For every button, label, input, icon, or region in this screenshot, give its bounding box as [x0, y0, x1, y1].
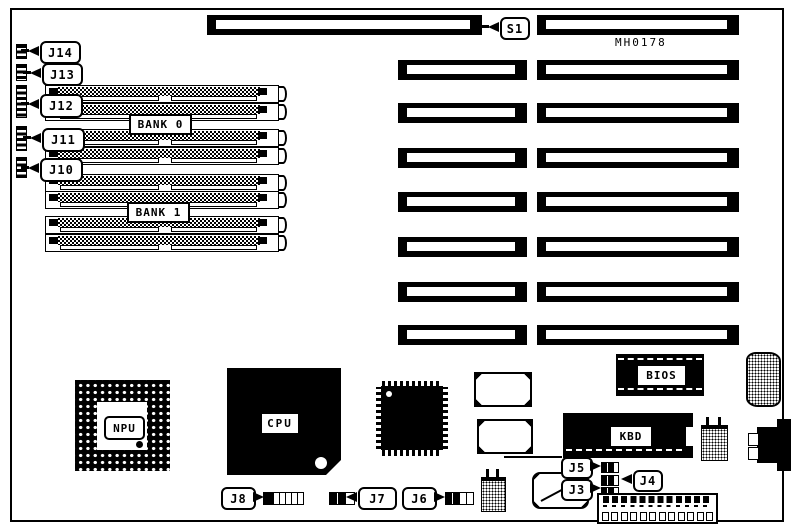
jumper-pins-j5: [601, 462, 619, 473]
pin1-dot-icon: [136, 441, 143, 448]
bios-pins-top: [618, 358, 702, 360]
qfp-pins-bottom: [382, 450, 442, 456]
callout-j11: J11: [42, 128, 81, 148]
arrow-left-icon: [30, 68, 41, 78]
expansion-slot: [537, 15, 739, 35]
callout-j3: J3: [561, 479, 589, 497]
callout-j10: J10: [40, 158, 79, 178]
bios-label: BIOS: [637, 365, 686, 386]
arrow-left-icon: [346, 492, 357, 502]
keyboard-connector: [777, 419, 791, 471]
power-connector-dashes: [603, 505, 712, 507]
expansion-slot: [398, 103, 527, 123]
arrow-right-icon: [590, 461, 601, 471]
arrow-left-icon: [488, 22, 499, 32]
expansion-slot: [398, 60, 527, 80]
npu-label: NPU: [104, 416, 145, 440]
jumper-pins-j4: [601, 475, 619, 486]
power-holes: [602, 512, 713, 521]
expansion-slot: [398, 282, 527, 302]
power-connector: [597, 493, 718, 524]
callout-s1: S1: [500, 17, 526, 36]
kbd-label: KBD: [610, 426, 652, 447]
arrow-right-icon: [590, 483, 601, 493]
expansion-slot: [537, 192, 739, 212]
bank1-label: BANK 1: [127, 202, 190, 223]
expansion-slot: [537, 103, 739, 123]
callout-j12: J12: [40, 94, 79, 114]
kbd-chip-notch: [686, 427, 693, 446]
expansion-slot-top: [207, 15, 482, 35]
motherboard-diagram: MH0178 BANK 0 BANK 1 J14 J13 J12 J11 J10: [0, 0, 791, 529]
connector-tab: [748, 447, 759, 460]
arrow-left-icon: [30, 133, 41, 143]
arrow-left-icon: [621, 474, 632, 484]
callout-j14: J14: [40, 41, 77, 60]
expansion-slot: [398, 237, 527, 257]
callout-j13: J13: [42, 63, 79, 82]
expansion-slot: [537, 148, 739, 168]
header-pins-j6: [445, 492, 474, 505]
expansion-slot: [537, 325, 739, 345]
expansion-slot: [398, 325, 527, 345]
expansion-slot: [537, 237, 739, 257]
arrow-left-icon: [28, 163, 39, 173]
power-connector-pins: [603, 496, 712, 503]
callout-j8: J8: [221, 487, 252, 506]
arrow-right-icon: [434, 492, 445, 502]
bank0-label: BANK 0: [129, 114, 192, 135]
part-number-text: MH0178: [615, 36, 667, 49]
cpu-label: CPU: [261, 413, 299, 434]
header-pins-j8: [263, 492, 304, 505]
simm-socket: [45, 234, 279, 252]
arrow-right-icon: [253, 492, 264, 502]
expansion-slot: [398, 192, 527, 212]
bios-pins-bottom: [618, 388, 702, 390]
connector-tab: [748, 433, 759, 446]
arrow-left-icon: [28, 99, 39, 109]
callout-j7: J7: [358, 487, 393, 506]
pin1-dot-icon: [386, 391, 392, 397]
oscillator: [477, 419, 533, 454]
callout-j4: J4: [633, 470, 659, 488]
oscillator: [474, 372, 532, 407]
crystal: [701, 425, 728, 461]
pin1-dot-icon: [315, 457, 327, 469]
inductor: [746, 352, 781, 407]
crystal: [481, 477, 506, 512]
expansion-slot: [537, 60, 739, 80]
kbd-pins-bottom: [566, 449, 682, 451]
arrow-left-icon: [28, 46, 39, 56]
expansion-slot: [537, 282, 739, 302]
expansion-slot: [398, 148, 527, 168]
leader-line: [504, 456, 562, 458]
callout-j5: J5: [561, 457, 589, 475]
callout-j6: J6: [402, 487, 433, 506]
